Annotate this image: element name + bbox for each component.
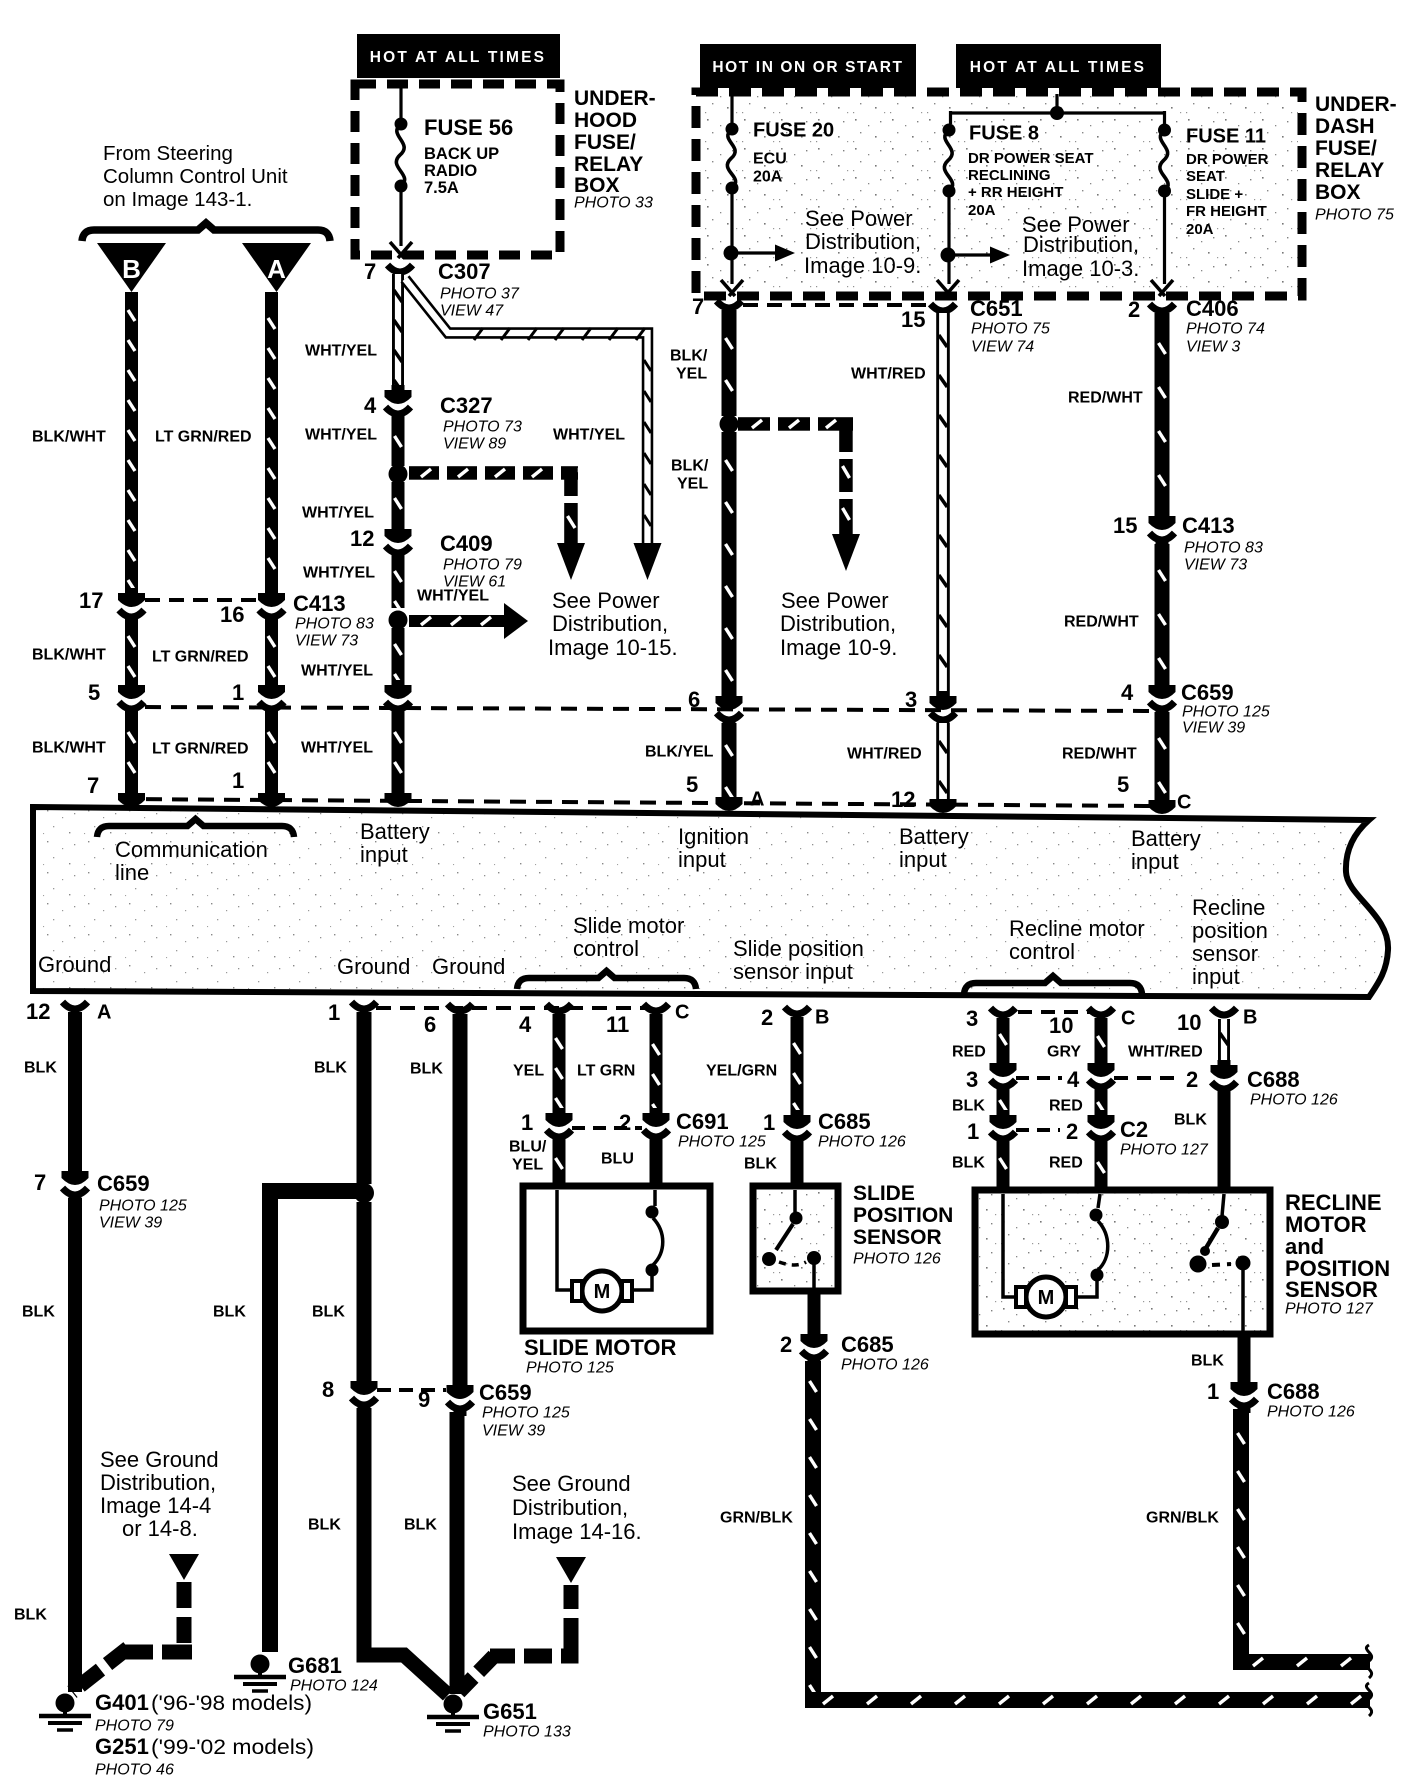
svg-text:A: A xyxy=(750,788,764,810)
svg-text:8: 8 xyxy=(322,1377,334,1402)
svg-text:7: 7 xyxy=(34,1170,46,1195)
svg-text:Ground: Ground xyxy=(38,952,111,977)
svg-text:PHOTO 79: PHOTO 79 xyxy=(95,1718,174,1735)
svg-text:3: 3 xyxy=(905,687,917,712)
svg-text:control: control xyxy=(573,936,639,961)
svg-text:PHOTO 125: PHOTO 125 xyxy=(526,1360,614,1377)
svg-text:7: 7 xyxy=(364,259,376,284)
svg-text:C307: C307 xyxy=(438,259,491,284)
svg-text:PHOTO 125: PHOTO 125 xyxy=(1182,704,1270,721)
svg-text:GRY: GRY xyxy=(1047,1044,1081,1061)
svg-text:LT GRN/RED: LT GRN/RED xyxy=(152,741,249,758)
svg-text:BLK/WHT: BLK/WHT xyxy=(32,740,106,757)
svg-text:PHOTO 75: PHOTO 75 xyxy=(971,321,1050,338)
svg-text:HOT AT ALL TIMES: HOT AT ALL TIMES xyxy=(970,59,1146,76)
svg-text:6: 6 xyxy=(424,1012,436,1037)
svg-text:C: C xyxy=(1177,791,1191,813)
svg-text:BLK: BLK xyxy=(308,1517,341,1534)
svg-text:BLK/WHT: BLK/WHT xyxy=(32,647,106,664)
svg-text:Distribution,: Distribution, xyxy=(780,611,896,636)
svg-text:20A: 20A xyxy=(753,169,783,186)
svg-text:C691: C691 xyxy=(676,1109,729,1134)
svg-text:VIEW 89: VIEW 89 xyxy=(443,436,506,453)
svg-text:Column Control Unit: Column Control Unit xyxy=(103,165,288,188)
svg-text:HOOD: HOOD xyxy=(574,109,637,132)
svg-text:PHOTO 83: PHOTO 83 xyxy=(1184,540,1263,557)
svg-text:PHOTO 125: PHOTO 125 xyxy=(482,1405,570,1422)
svg-text:Image 14-16.: Image 14-16. xyxy=(512,1519,642,1544)
svg-text:input: input xyxy=(678,847,726,872)
svg-text:C685: C685 xyxy=(841,1332,894,1357)
svg-text:20A: 20A xyxy=(968,202,996,219)
svg-text:M: M xyxy=(594,1281,611,1303)
svg-text:sensor: sensor xyxy=(1192,941,1258,966)
svg-text:M: M xyxy=(1038,1287,1055,1309)
svg-text:1: 1 xyxy=(763,1110,775,1135)
svg-text:C2: C2 xyxy=(1120,1117,1148,1142)
svg-text:PHOTO 79: PHOTO 79 xyxy=(443,557,522,574)
svg-text:Image 10-9.: Image 10-9. xyxy=(780,635,897,660)
svg-text:BLK: BLK xyxy=(1191,1353,1224,1370)
svg-text:G681: G681 xyxy=(288,1653,342,1678)
svg-text:WHT/YEL: WHT/YEL xyxy=(302,505,374,522)
svg-text:GRN/BLK: GRN/BLK xyxy=(720,1510,793,1527)
svg-text:2: 2 xyxy=(1128,297,1140,322)
svg-text:RED/WHT: RED/WHT xyxy=(1062,746,1137,763)
svg-text:RADIO: RADIO xyxy=(424,162,477,180)
svg-text:Ground: Ground xyxy=(337,954,410,979)
svg-text:FUSE 11: FUSE 11 xyxy=(1186,125,1266,147)
svg-text:YEL: YEL xyxy=(513,1063,544,1080)
svg-text:HOT IN ON OR START: HOT IN ON OR START xyxy=(712,59,903,76)
svg-text:15: 15 xyxy=(1113,513,1137,538)
svg-text:2: 2 xyxy=(1186,1067,1198,1092)
svg-text:BLU/: BLU/ xyxy=(509,1139,547,1156)
svg-text:RECLINING: RECLINING xyxy=(968,167,1051,184)
svg-text:FR HEIGHT: FR HEIGHT xyxy=(1186,203,1267,220)
svg-text:Recline motor: Recline motor xyxy=(1009,916,1145,941)
svg-text:4: 4 xyxy=(1067,1067,1080,1092)
svg-text:G251: G251 xyxy=(95,1734,149,1759)
svg-text:BOX: BOX xyxy=(1315,181,1361,204)
svg-text:FUSE 56: FUSE 56 xyxy=(424,115,513,140)
svg-text:('96-'98 models): ('96-'98 models) xyxy=(151,1692,312,1715)
svg-text:VIEW 73: VIEW 73 xyxy=(295,633,358,650)
svg-text:1: 1 xyxy=(967,1119,979,1144)
svg-text:Distribution,: Distribution, xyxy=(512,1495,628,1520)
svg-text:ECU: ECU xyxy=(753,151,787,168)
svg-text:2: 2 xyxy=(761,1005,773,1030)
svg-text:LT GRN/RED: LT GRN/RED xyxy=(152,649,249,666)
svg-text:RELAY: RELAY xyxy=(1315,159,1384,182)
svg-text:C: C xyxy=(675,1001,689,1023)
svg-text:A: A xyxy=(97,1001,111,1023)
svg-text:G651: G651 xyxy=(483,1699,537,1724)
svg-text:VIEW 47: VIEW 47 xyxy=(440,303,504,320)
svg-text:C413: C413 xyxy=(1182,513,1235,538)
svg-text:Ground: Ground xyxy=(432,954,505,979)
svg-text:YEL: YEL xyxy=(512,1157,543,1174)
svg-text:('99-'02 models): ('99-'02 models) xyxy=(151,1736,314,1759)
svg-text:C651: C651 xyxy=(970,296,1023,321)
svg-text:DR POWER: DR POWER xyxy=(1186,151,1269,168)
svg-text:PHOTO 74: PHOTO 74 xyxy=(1186,321,1265,338)
svg-text:See Power: See Power xyxy=(781,588,889,613)
svg-text:PHOTO 126: PHOTO 126 xyxy=(818,1134,906,1151)
svg-text:VIEW 3: VIEW 3 xyxy=(1186,339,1240,356)
svg-text:PHOTO 126: PHOTO 126 xyxy=(1250,1092,1338,1109)
svg-text:5: 5 xyxy=(88,680,100,705)
svg-text:C688: C688 xyxy=(1247,1067,1300,1092)
svg-text:BLK: BLK xyxy=(744,1156,777,1173)
svg-text:BLK/YEL: BLK/YEL xyxy=(645,744,714,761)
svg-text:PHOTO 83: PHOTO 83 xyxy=(295,616,374,633)
svg-text:C409: C409 xyxy=(440,531,493,556)
svg-text:B: B xyxy=(122,254,141,284)
svg-text:4: 4 xyxy=(519,1012,532,1037)
svg-text:C688: C688 xyxy=(1267,1379,1320,1404)
svg-text:GRN/BLK: GRN/BLK xyxy=(1146,1510,1219,1527)
svg-text:WHT/YEL: WHT/YEL xyxy=(301,663,373,680)
svg-text:FUSE/: FUSE/ xyxy=(1315,137,1377,160)
svg-text:RED: RED xyxy=(1049,1155,1083,1172)
svg-text:input: input xyxy=(1131,849,1179,874)
svg-text:PHOTO 124: PHOTO 124 xyxy=(290,1678,378,1695)
svg-text:BLK/: BLK/ xyxy=(670,348,708,365)
svg-text:PHOTO 125: PHOTO 125 xyxy=(99,1198,187,1215)
svg-text:DASH: DASH xyxy=(1315,115,1375,138)
svg-text:C327: C327 xyxy=(440,393,493,418)
svg-text:position: position xyxy=(1192,918,1268,943)
svg-text:B: B xyxy=(1243,1006,1257,1028)
svg-text:WHT/YEL: WHT/YEL xyxy=(305,427,377,444)
svg-text:SENSOR: SENSOR xyxy=(1285,1277,1378,1302)
svg-text:2: 2 xyxy=(1066,1119,1078,1144)
svg-text:Image 10-3.: Image 10-3. xyxy=(1022,256,1139,281)
svg-text:HOT AT ALL TIMES: HOT AT ALL TIMES xyxy=(370,49,546,66)
svg-text:WHT/RED: WHT/RED xyxy=(1128,1044,1203,1061)
svg-text:SLIDE +: SLIDE + xyxy=(1186,186,1243,203)
svg-text:BLK: BLK xyxy=(410,1061,443,1078)
svg-text:12: 12 xyxy=(26,999,50,1024)
svg-text:BLU: BLU xyxy=(601,1151,634,1168)
svg-text:VIEW 73: VIEW 73 xyxy=(1184,557,1247,574)
svg-text:YEL: YEL xyxy=(677,476,708,493)
svg-text:WHT/YEL: WHT/YEL xyxy=(553,427,625,444)
svg-text:WHT/YEL: WHT/YEL xyxy=(417,588,489,605)
svg-text:Battery: Battery xyxy=(899,824,969,849)
svg-text:C685: C685 xyxy=(818,1109,871,1134)
svg-text:SLIDE MOTOR: SLIDE MOTOR xyxy=(524,1335,676,1360)
svg-text:See Power: See Power xyxy=(805,206,913,231)
svg-text:5: 5 xyxy=(1117,772,1129,797)
svg-text:input: input xyxy=(360,842,408,867)
svg-text:15: 15 xyxy=(901,307,925,332)
svg-text:Image 10-15.: Image 10-15. xyxy=(548,635,678,660)
svg-text:From Steering: From Steering xyxy=(103,142,233,165)
svg-text:4: 4 xyxy=(364,393,377,418)
svg-text:1: 1 xyxy=(1207,1379,1219,1404)
svg-text:UNDER-: UNDER- xyxy=(1315,93,1397,116)
svg-text:sensor input: sensor input xyxy=(733,959,853,984)
svg-text:2: 2 xyxy=(619,1110,631,1135)
svg-text:+ RR HEIGHT: + RR HEIGHT xyxy=(968,184,1063,201)
svg-text:BLK: BLK xyxy=(312,1304,345,1321)
svg-text:A: A xyxy=(267,254,286,284)
svg-text:Distribution,: Distribution, xyxy=(552,611,668,636)
svg-text:POSITION: POSITION xyxy=(853,1204,953,1227)
svg-text:PHOTO 127: PHOTO 127 xyxy=(1285,1301,1374,1318)
svg-text:VIEW 39: VIEW 39 xyxy=(99,1215,162,1232)
svg-text:BLK: BLK xyxy=(314,1060,347,1077)
svg-text:See Ground: See Ground xyxy=(512,1471,631,1496)
svg-text:WHT/RED: WHT/RED xyxy=(847,746,922,763)
svg-text:Slide motor: Slide motor xyxy=(573,913,684,938)
svg-text:C659: C659 xyxy=(97,1171,150,1196)
svg-text:7.5A: 7.5A xyxy=(424,179,459,197)
svg-text:C659: C659 xyxy=(1181,680,1234,705)
svg-text:PHOTO 73: PHOTO 73 xyxy=(443,419,522,436)
svg-text:SLIDE: SLIDE xyxy=(853,1182,915,1205)
svg-text:PHOTO 37: PHOTO 37 xyxy=(440,286,520,303)
svg-text:FUSE 20: FUSE 20 xyxy=(753,119,834,141)
svg-text:PHOTO 75: PHOTO 75 xyxy=(1315,207,1394,224)
svg-text:See Power: See Power xyxy=(552,588,660,613)
svg-text:Battery: Battery xyxy=(1131,826,1201,851)
svg-text:BLK: BLK xyxy=(404,1517,437,1534)
svg-text:10: 10 xyxy=(1177,1010,1201,1035)
svg-text:Image 14-4: Image 14-4 xyxy=(100,1493,211,1518)
svg-text:17: 17 xyxy=(79,588,103,613)
svg-text:RED: RED xyxy=(1049,1098,1083,1115)
svg-text:See Ground: See Ground xyxy=(100,1447,219,1472)
svg-text:C659: C659 xyxy=(479,1380,532,1405)
svg-text:BLK: BLK xyxy=(14,1607,47,1624)
svg-text:2: 2 xyxy=(780,1332,792,1357)
svg-text:BLK/: BLK/ xyxy=(671,458,709,475)
svg-text:G401: G401 xyxy=(95,1690,149,1715)
svg-text:3: 3 xyxy=(966,1006,978,1031)
svg-text:PHOTO 46: PHOTO 46 xyxy=(95,1762,174,1779)
svg-text:SENSOR: SENSOR xyxy=(853,1226,942,1249)
svg-text:WHT/YEL: WHT/YEL xyxy=(301,740,373,757)
svg-text:FUSE 8: FUSE 8 xyxy=(969,122,1039,144)
svg-text:Communication: Communication xyxy=(115,837,268,862)
svg-text:RED/WHT: RED/WHT xyxy=(1064,614,1139,631)
svg-text:16: 16 xyxy=(220,602,244,627)
svg-text:WHT/YEL: WHT/YEL xyxy=(305,343,377,360)
svg-text:5: 5 xyxy=(686,772,698,797)
svg-text:6: 6 xyxy=(688,687,700,712)
svg-text:input: input xyxy=(1192,964,1240,989)
svg-text:PHOTO 126: PHOTO 126 xyxy=(853,1251,941,1268)
svg-text:7: 7 xyxy=(692,294,704,319)
svg-text:RELAY: RELAY xyxy=(574,153,643,176)
svg-text:on Image 143-1.: on Image 143-1. xyxy=(103,188,252,211)
svg-text:Ignition: Ignition xyxy=(678,824,749,849)
svg-text:BACK UP: BACK UP xyxy=(424,145,499,163)
svg-text:Distribution,: Distribution, xyxy=(805,229,921,254)
svg-text:VIEW 39: VIEW 39 xyxy=(1182,720,1245,737)
svg-text:DR POWER SEAT: DR POWER SEAT xyxy=(968,150,1094,167)
svg-text:12: 12 xyxy=(891,787,915,812)
svg-text:VIEW 74: VIEW 74 xyxy=(971,339,1034,356)
svg-text:Slide position: Slide position xyxy=(733,936,864,961)
svg-text:BLK: BLK xyxy=(22,1304,55,1321)
svg-text:control: control xyxy=(1009,939,1075,964)
svg-text:WHT/YEL: WHT/YEL xyxy=(303,565,375,582)
svg-text:PHOTO 126: PHOTO 126 xyxy=(1267,1404,1355,1421)
svg-text:RED: RED xyxy=(952,1044,986,1061)
svg-text:UNDER-: UNDER- xyxy=(574,87,656,110)
svg-text:VIEW 39: VIEW 39 xyxy=(482,1423,545,1440)
svg-text:1: 1 xyxy=(521,1110,533,1135)
svg-text:PHOTO 133: PHOTO 133 xyxy=(483,1724,571,1741)
svg-text:1: 1 xyxy=(232,768,244,793)
svg-text:PHOTO 33: PHOTO 33 xyxy=(574,195,653,212)
svg-text:7: 7 xyxy=(87,773,99,798)
svg-text:line: line xyxy=(115,860,149,885)
svg-text:SEAT: SEAT xyxy=(1186,168,1225,185)
svg-text:BLK: BLK xyxy=(952,1098,985,1115)
svg-text:BLK: BLK xyxy=(1174,1112,1207,1129)
svg-text:B: B xyxy=(815,1006,829,1028)
svg-text:PHOTO 127: PHOTO 127 xyxy=(1120,1142,1209,1159)
svg-text:C: C xyxy=(1121,1007,1135,1029)
svg-text:Distribution,: Distribution, xyxy=(1023,232,1139,257)
svg-text:Image 10-9.: Image 10-9. xyxy=(804,253,921,278)
svg-text:BLK: BLK xyxy=(952,1155,985,1172)
svg-text:20A: 20A xyxy=(1186,221,1214,238)
svg-text:YEL/GRN: YEL/GRN xyxy=(706,1063,777,1080)
svg-text:YEL: YEL xyxy=(676,366,707,383)
svg-text:1: 1 xyxy=(232,680,244,705)
svg-text:BLK: BLK xyxy=(24,1060,57,1077)
svg-text:PHOTO 125: PHOTO 125 xyxy=(678,1134,766,1151)
svg-text:1: 1 xyxy=(328,1000,340,1025)
svg-text:FUSE/: FUSE/ xyxy=(574,131,636,154)
svg-text:3: 3 xyxy=(966,1067,978,1092)
svg-text:Battery: Battery xyxy=(360,819,430,844)
svg-text:LT GRN: LT GRN xyxy=(577,1063,635,1080)
svg-text:Distribution,: Distribution, xyxy=(100,1470,216,1495)
svg-text:C406: C406 xyxy=(1186,296,1239,321)
svg-text:PHOTO 126: PHOTO 126 xyxy=(841,1357,929,1374)
svg-text:RED/WHT: RED/WHT xyxy=(1068,390,1143,407)
svg-text:BLK/WHT: BLK/WHT xyxy=(32,429,106,446)
svg-text:4: 4 xyxy=(1121,680,1134,705)
svg-text:Recline: Recline xyxy=(1192,895,1265,920)
svg-text:or 14-8.: or 14-8. xyxy=(122,1516,198,1541)
svg-text:10: 10 xyxy=(1049,1013,1073,1038)
svg-text:LT GRN/RED: LT GRN/RED xyxy=(155,429,252,446)
svg-text:C413: C413 xyxy=(293,591,346,616)
svg-text:12: 12 xyxy=(350,526,374,551)
svg-text:input: input xyxy=(899,847,947,872)
svg-text:WHT/RED: WHT/RED xyxy=(851,366,926,383)
svg-text:BLK: BLK xyxy=(213,1304,246,1321)
svg-text:11: 11 xyxy=(606,1012,629,1037)
